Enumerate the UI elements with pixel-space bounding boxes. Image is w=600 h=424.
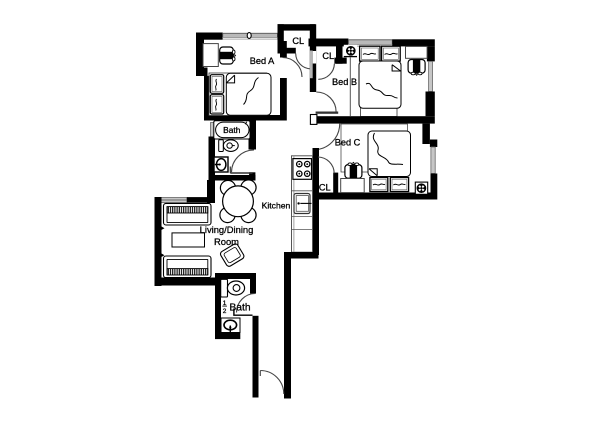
- svg-text:2: 2: [223, 308, 227, 315]
- svg-text:Bed C: Bed C: [335, 138, 361, 148]
- svg-text:Room: Room: [214, 236, 239, 247]
- svg-text:Bed B: Bed B: [332, 77, 357, 87]
- svg-text:CL: CL: [319, 183, 331, 193]
- svg-text:Bath: Bath: [223, 125, 241, 135]
- svg-text:CL: CL: [322, 51, 334, 61]
- svg-text:Kitchen: Kitchen: [262, 200, 291, 210]
- svg-text:CL: CL: [292, 36, 304, 46]
- svg-text:Bath: Bath: [229, 302, 250, 313]
- svg-text:Bed A: Bed A: [250, 56, 275, 66]
- svg-text:Living/Dining: Living/Dining: [200, 224, 254, 235]
